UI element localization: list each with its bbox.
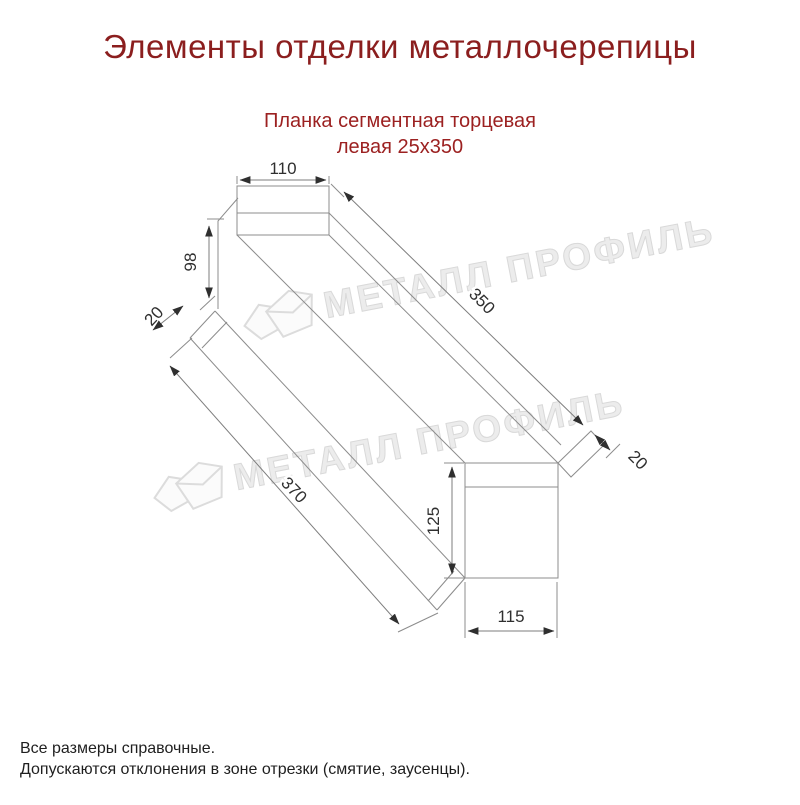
dimension-115: 115 [465, 582, 557, 638]
watermark-lower: МЕТАЛЛ ПРОФИЛЬ [150, 381, 629, 516]
dimension-98: 98 [181, 226, 215, 310]
watermark-logo-icon [240, 287, 319, 344]
dim-label-125: 125 [424, 507, 443, 535]
dimension-125: 125 [424, 463, 464, 578]
dim-label-115: 115 [497, 607, 524, 626]
dim-label-20-left: 20 [141, 303, 168, 330]
note-line1: Все размеры справочные. [20, 738, 780, 759]
watermark-logo-icon [150, 459, 229, 516]
dimension-20-right: 20 [595, 435, 651, 474]
dimension-110: 110 [237, 159, 329, 184]
dim-label-98: 98 [181, 253, 200, 272]
footnotes: Все размеры справочные. Допускаются откл… [20, 738, 780, 780]
dim-label-20-right: 20 [624, 447, 651, 474]
technical-drawing: МЕТАЛЛ ПРОФИЛЬ МЕТАЛЛ ПРОФИЛЬ [0, 0, 800, 805]
note-line2: Допускаются отклонения в зоне отрезки (с… [20, 759, 780, 780]
dimension-20-left: 20 [141, 303, 183, 330]
dim-label-110: 110 [269, 159, 296, 178]
